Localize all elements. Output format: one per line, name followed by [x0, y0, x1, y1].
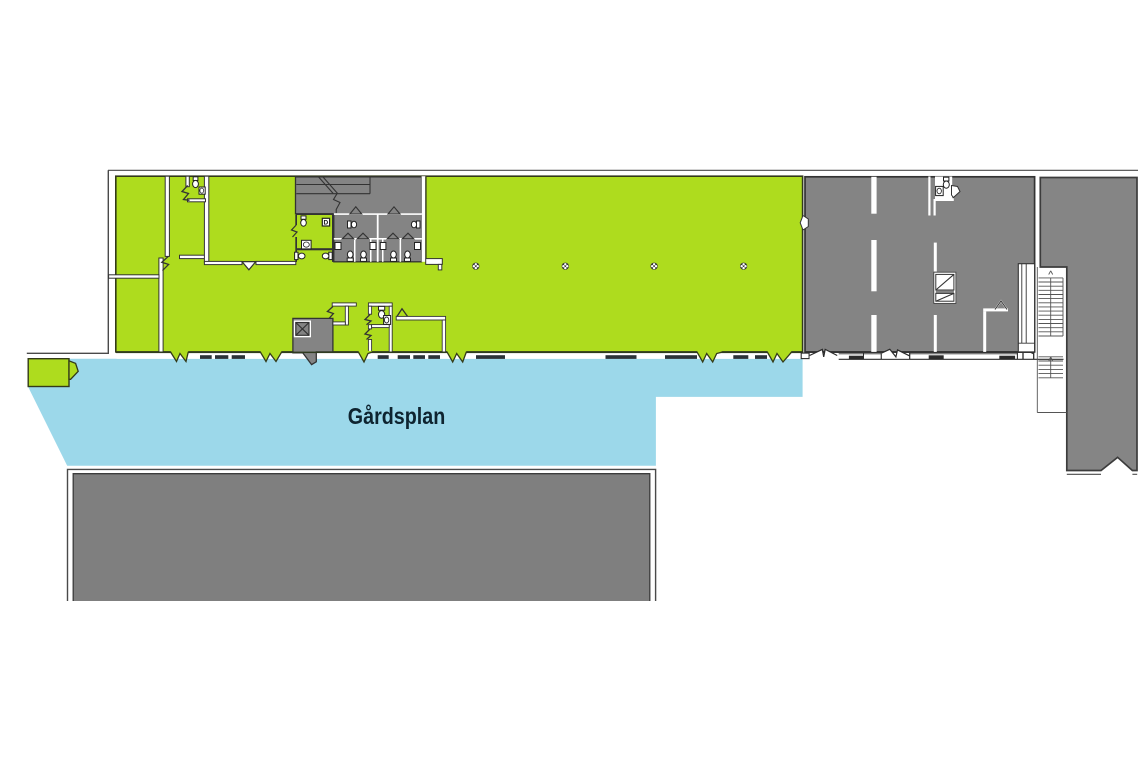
svg-text:D: D: [324, 220, 329, 227]
svg-text:Gårdsplan: Gårdsplan: [348, 403, 446, 429]
